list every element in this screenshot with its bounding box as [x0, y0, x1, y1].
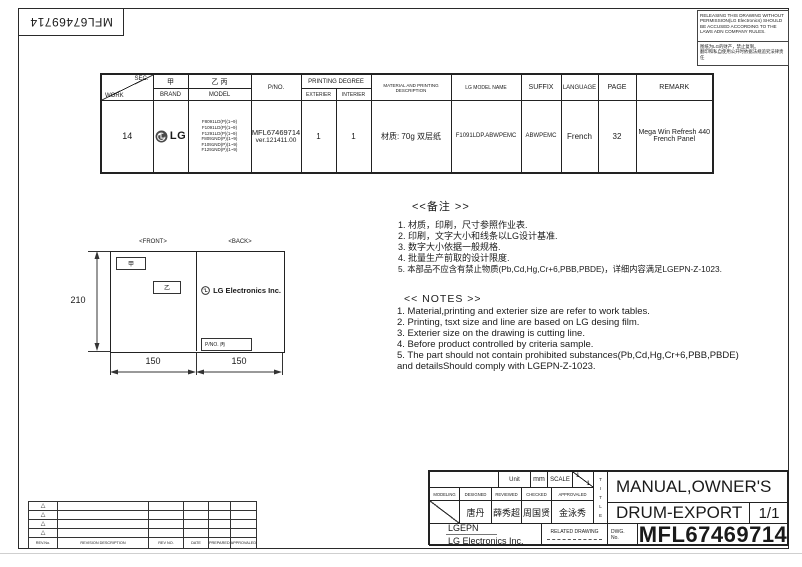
interier-header: INTERIER	[336, 89, 371, 101]
dwg-label: No.	[611, 535, 619, 541]
notes-cn-item: 3. 数字大小依据一般规格.	[398, 242, 722, 253]
lg-logo-icon	[201, 283, 210, 298]
notes-en-title: << NOTES >>	[404, 293, 482, 305]
title-block: Unit mm SCALE 1 1 MODELING DESIGNED REVI…	[428, 470, 788, 545]
title-letter: E	[599, 511, 602, 520]
revision-header-row: REV.No. REVISION DESCRIPTION REV NO. DAT…	[29, 538, 257, 549]
dim-arrow-front	[110, 367, 196, 377]
suffix-header: SUFFIX	[521, 74, 561, 101]
sec-label: SEC.	[134, 76, 148, 82]
unit-value: mm	[530, 471, 548, 488]
sheet-number: 1/1	[749, 502, 789, 524]
dim-ext-right	[282, 353, 283, 375]
scale-label: SCALE	[547, 471, 573, 488]
cover-brand-box: 甲	[116, 257, 146, 270]
page-value: 32	[598, 101, 636, 173]
remark-value: Mega Win Refresh 440 French Panel	[636, 101, 713, 173]
doc-title-line2: DRUM-EXPORT	[607, 502, 750, 524]
warning-cn-line2: 翻印和私自使用公开时依据法规追究法律责任	[700, 49, 786, 60]
model-line: F1291ND(P)(1~9)	[189, 147, 251, 153]
notes-en-item: and detailsShould comply with LGEPN-Z-10…	[397, 361, 739, 372]
warning-box: RELEASING THIS DRAWING WITHOUT PERMISSIO…	[697, 10, 789, 66]
model-cn-header: 乙 丙	[188, 74, 251, 89]
revision-triangle-icon: △	[41, 511, 46, 518]
page-header: PAGE	[598, 74, 636, 101]
rev-no-label: REV.No.	[29, 538, 58, 549]
work-table-row: 14 LG F8091LD(P)(1~9) F1091LD(P)(1~9) F1…	[101, 101, 713, 173]
revision-triangle-icon: △	[41, 502, 46, 509]
cover-pno-box: P/NO. 丙	[201, 338, 252, 351]
brand-cn-header: 甲	[153, 74, 188, 89]
dim-arrow-back	[196, 367, 282, 377]
title-letter: I	[600, 484, 601, 493]
approved-name: 金泳秀	[551, 500, 594, 524]
notes-cn-item: 4. 批量生产前取的设计限度.	[398, 253, 722, 264]
dim-height-label: 210	[68, 295, 88, 305]
doc-number-rotated: MFL67469714	[30, 15, 113, 29]
doc-title-line1: MANUAL,OWNER'S	[607, 471, 789, 503]
dim-arrow-vertical	[91, 251, 103, 351]
revision-table: △ △ △ △ REV.No. REVISION DESCRIPTION REV…	[28, 501, 257, 549]
revision-row: △	[29, 520, 257, 529]
title-vertical-strip: T I T L E	[593, 471, 608, 524]
dim-front-label: 150	[110, 356, 196, 366]
revision-row: △	[29, 502, 257, 511]
material-header: MATERIAL AND PRINTING DESCRIPTION	[371, 74, 451, 101]
notes-en-item: 2. Printing, tsxt size and line are base…	[397, 317, 739, 328]
revision-row: △	[29, 529, 257, 538]
notes-en-list: 1. Material,printing and exterier size a…	[397, 306, 739, 372]
pno-value: MFL67469714 ver.121411.00	[251, 101, 301, 173]
related-drawing-cell: RELATED DRAWING	[541, 523, 608, 546]
model-value: F8091LD(P)(1~9) F1091LD(P)(1~9) F1291LD(…	[188, 101, 251, 173]
company-short: LGEPN	[446, 523, 497, 535]
approved-label: APPROVALED	[230, 538, 256, 549]
pno-number: MFL67469714	[252, 128, 301, 137]
company-cell: LGEPN LG Electronics Inc.	[429, 523, 542, 546]
dwg-no-cell: DWG. No.	[607, 523, 638, 546]
page-bottom-edge	[0, 553, 802, 554]
rev-no2-label: REV NO.	[149, 538, 184, 549]
notes-cn-item: 1. 材质，印刷，尺寸参照作业表.	[398, 220, 722, 231]
company-full: LG Electronics Inc.	[446, 535, 524, 546]
cover-fold-line	[196, 251, 197, 351]
date-label: DATE	[184, 538, 209, 549]
printing-degree-header: PRINTING DEGREE	[301, 74, 371, 89]
scale-denominator: 1	[586, 480, 590, 487]
exterier-value: 1	[301, 101, 336, 173]
work-label: WORK	[105, 93, 124, 99]
lg-emblem-icon	[155, 130, 168, 143]
lg-model-name-header: LG MODEL NAME	[451, 74, 521, 101]
dim-back-label: 150	[196, 356, 282, 366]
model-header: MODEL	[188, 89, 251, 101]
prepared-label: PREPARED	[209, 538, 231, 549]
back-label: <BACK>	[197, 239, 283, 245]
revision-row: △	[29, 511, 257, 520]
page: { "stamp": { "doc_no": "MFL67469714" }, …	[0, 0, 802, 567]
brand-text: LG	[170, 130, 186, 142]
scale-numerator: 1	[576, 472, 580, 479]
revision-triangle-icon: △	[41, 520, 46, 527]
revision-description-label: REVISION DESCRIPTION	[58, 538, 149, 549]
pno-version: ver.121411.00	[252, 137, 301, 144]
brand-value: LG	[153, 101, 188, 173]
approved-label: APPROVALED	[551, 487, 594, 501]
interier-value: 1	[336, 101, 371, 173]
remark-header: REMARK	[636, 74, 713, 101]
sec-work-header: SEC. WORK	[101, 74, 153, 101]
cover-logo: LG Electronics Inc.	[201, 282, 281, 298]
front-label: <FRONT>	[110, 239, 196, 245]
cover-model-box: 乙	[153, 281, 181, 294]
material-value: 材质: 70g 双层纸	[371, 101, 451, 173]
exterier-header: EXTERIER	[301, 89, 336, 101]
notes-cn-item: 5. 本部品不应含有禁止物质(Pb,Cd,Hg,Cr+6,PBB,PBDE)，详…	[398, 264, 722, 275]
related-drawing-line	[547, 539, 603, 540]
dwg-number: MFL67469714	[637, 523, 789, 546]
notes-en-item: 5. The part should not contain prohibite…	[397, 350, 739, 361]
language-value: French	[561, 101, 598, 173]
notes-cn-title: <<备注 >>	[412, 198, 470, 214]
checked-name: 周国贤	[521, 500, 552, 524]
notes-en-item: 1. Material,printing and exterier size a…	[397, 306, 739, 317]
modeling-signature	[429, 500, 460, 524]
title-letter: L	[599, 502, 602, 511]
work-table: SEC. WORK 甲 乙 丙 P/NO. PRINTING DEGREE MA…	[100, 73, 714, 174]
warning-text-en: RELEASING THIS DRAWING WITHOUT PERMISSIO…	[698, 11, 788, 42]
reviewed-name: 薛秀超	[491, 500, 522, 524]
scale-value: 1 1	[572, 471, 594, 488]
revision-triangle-icon: △	[41, 529, 46, 536]
pno-header: P/NO.	[251, 74, 301, 101]
notes-cn-item: 2. 印刷，文字大小和线条以LG设计基准.	[398, 231, 722, 242]
notes-en-item: 4. Before product controlled by criteria…	[397, 339, 739, 350]
remark-line1: Mega Win Refresh 440	[637, 129, 713, 136]
title-block-blank-cell	[429, 471, 499, 488]
warning-text-cn: 图纸为LG的财产，禁止复制。 翻印和私自使用公开时依据法规追究法律责任	[698, 42, 788, 63]
doc-number-stamp: MFL67469714	[18, 8, 124, 36]
related-drawing-label: RELATED DRAWING	[550, 529, 598, 535]
lg-model-name-value: F1091LDP.ABWPEMC	[451, 101, 521, 173]
brand-header: BRAND	[153, 89, 188, 101]
title-letter: T	[599, 493, 602, 502]
dim-ext-bottom	[88, 351, 110, 352]
unit-label: Unit	[498, 471, 531, 488]
designed-name: 唐丹	[459, 500, 492, 524]
language-header: LANGUAGE	[561, 74, 598, 101]
remark-line2: French Panel	[637, 136, 713, 143]
notes-cn-list: 1. 材质，印刷，尺寸参照作业表. 2. 印刷，文字大小和线条以LG设计基准. …	[398, 220, 722, 275]
notes-en-item: 3. Exterier size on the drawing is cutti…	[397, 328, 739, 339]
reviewed-label: REVIEWED	[491, 487, 522, 501]
cover-logo-text: LG Electronics Inc.	[213, 286, 281, 295]
title-letter: T	[599, 475, 602, 484]
checked-label: CHECKED	[521, 487, 552, 501]
work-value: 14	[101, 101, 153, 173]
suffix-value: ABWPEMC	[521, 101, 561, 173]
modeling-label: MODELING	[429, 487, 460, 501]
designed-label: DESIGNED	[459, 487, 492, 501]
